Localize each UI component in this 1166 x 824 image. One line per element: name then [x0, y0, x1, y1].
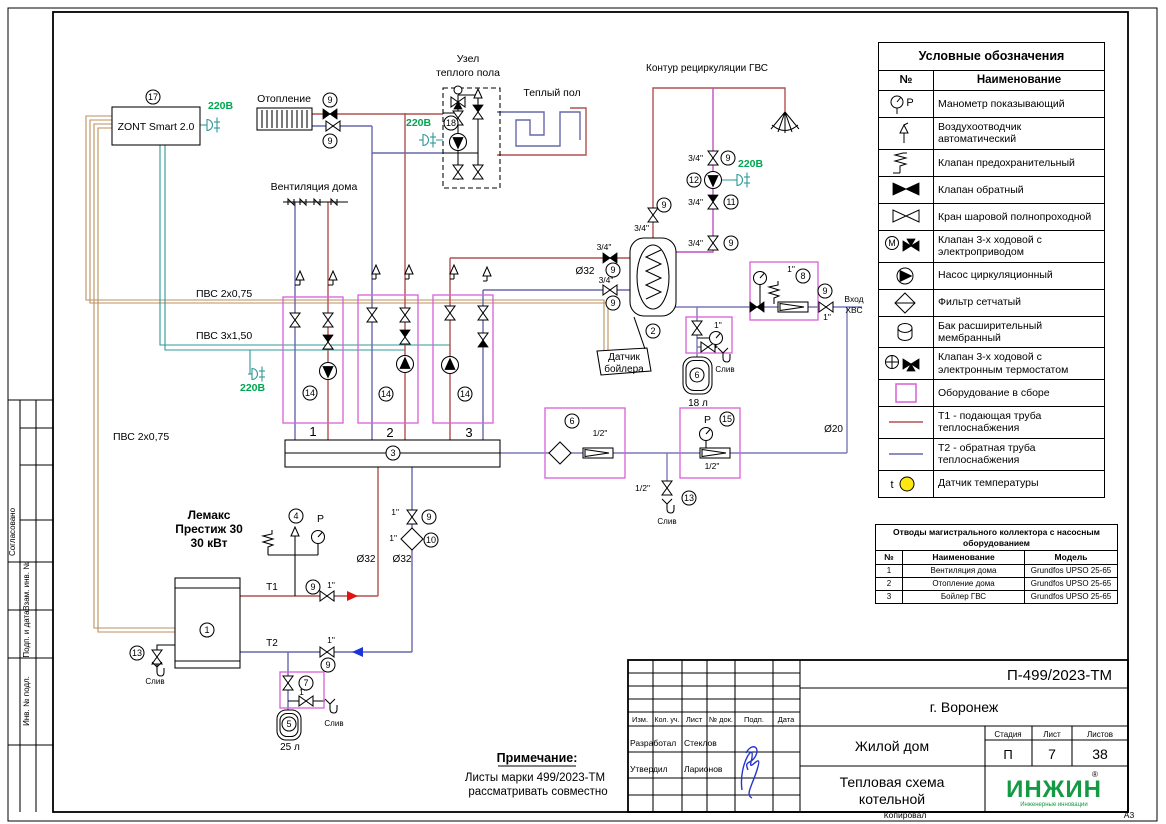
legend-row-name: Воздухоотводчик автоматический	[934, 118, 1104, 149]
doc-number: П-499/2023-ТМ	[1007, 667, 1112, 684]
equipment-tag: 18	[444, 116, 458, 130]
pump-col-model: Модель	[1025, 551, 1117, 564]
equipment-tag: 14	[458, 387, 472, 401]
size-label: 1"	[714, 320, 722, 330]
legend-row: Воздухоотводчик автоматический	[879, 118, 1104, 150]
legend-row: МКлапан 3-х ходовой с электроприводом	[879, 231, 1104, 263]
group-number: 1	[309, 424, 316, 439]
pump-table: Отводы магистрального коллектора с насос…	[875, 524, 1118, 604]
power-label: 220В	[406, 117, 432, 129]
svg-text:9: 9	[327, 95, 332, 105]
equipment-tag: 1	[200, 623, 214, 637]
equipment-tag: 14	[303, 386, 317, 400]
ball-icon	[879, 204, 934, 230]
size-label: Ø32	[576, 266, 595, 277]
size-label: 1/2"	[593, 428, 608, 438]
rev-col: № док.	[709, 715, 733, 724]
equipment-tag: 2	[646, 324, 660, 338]
svg-text:t: t	[890, 479, 893, 491]
boiler-name: Престиж 30	[175, 522, 243, 536]
equipment-tag: 9	[606, 263, 620, 277]
drain-label: Слив	[657, 517, 676, 526]
inlet-label: Вход	[844, 294, 863, 304]
pump-row-name: Вентиляция дома	[903, 565, 1025, 577]
pump-row-model: Grundfos UPSO 25-65	[1025, 578, 1117, 590]
strainer-icon	[879, 290, 934, 316]
equipment-tag: 9	[323, 93, 337, 107]
equipment-tag: 6	[565, 414, 579, 428]
svg-text:14: 14	[381, 389, 391, 399]
equipment-tag: 3	[386, 446, 400, 460]
note-line2: рассматривать совместно	[468, 786, 607, 798]
sidebar-section-label: Инв. № подл.	[22, 676, 31, 726]
legend-row: tДатчик температуры	[879, 471, 1104, 497]
svg-text:9: 9	[822, 286, 827, 296]
equipment-tag: 9	[721, 151, 735, 165]
pump-row-name: Отопление дома	[903, 578, 1025, 590]
rev-col: Лист	[686, 715, 703, 724]
legend-rows: PМанометр показывающийВоздухоотводчик ав…	[879, 91, 1104, 497]
equipment-tag: 5	[282, 717, 296, 731]
size-label: 1"	[327, 580, 335, 590]
legend-col-no: №	[879, 71, 934, 90]
size-label: 1/2"	[705, 461, 720, 471]
size-label: 1"	[391, 507, 399, 517]
gauge-p-label: P	[704, 414, 711, 426]
power-label: 220В	[208, 100, 234, 112]
legend-row-name: Датчик температуры	[934, 471, 1104, 497]
pipe-label-t2: Т2	[266, 638, 278, 649]
svg-text:9: 9	[728, 238, 733, 248]
svg-text:18: 18	[446, 118, 456, 128]
sensor-label: Датчик	[608, 352, 640, 363]
drain-label: Слив	[145, 677, 164, 686]
logo-subtitle: Инженерные инновации	[1020, 802, 1088, 808]
title-block: П-499/2023-ТМ г. Воронеж Жилой дом Стади…	[628, 660, 1128, 812]
ball-valves-horizontal	[299, 121, 833, 706]
size-label: 1"	[787, 264, 795, 274]
svg-text:9: 9	[725, 153, 730, 163]
shower-icon	[771, 112, 799, 133]
cable-label: ПВС 3х1,50	[196, 330, 252, 342]
sidebar-section-label: Взам. инв. №	[22, 561, 31, 611]
svg-text:5: 5	[286, 719, 291, 729]
legend-row: Клапан предохранительный	[879, 150, 1104, 177]
zont-label: ZONT Smart 2.0	[118, 121, 195, 133]
equipment-tag: 6	[690, 368, 704, 382]
pump-table-title: Отводы магистрального коллектора с насос…	[876, 525, 1117, 551]
radiator-icon	[257, 108, 312, 130]
legend-row: Клапан 3-х ходовой с электронным термост…	[879, 348, 1104, 380]
equipment-tag: 12	[687, 173, 701, 187]
boiler-name: Лемакс	[188, 508, 231, 522]
equipment-tag: 7	[299, 676, 313, 690]
note-line1: Листы марки 499/2023-ТМ	[465, 772, 605, 784]
equipment-tag: 9	[724, 236, 738, 250]
flow-arrow-supply	[347, 591, 358, 601]
equipment-tag: 9	[321, 658, 335, 672]
motor3way-icon: М	[879, 231, 934, 262]
legend-row-name: Клапан 3-х ходовой с электронным термост…	[934, 348, 1104, 379]
pressure-gauges	[312, 272, 767, 548]
logo-r-mark: ®	[1092, 770, 1098, 779]
safety-icon	[879, 150, 934, 176]
size-label: 3/4"	[634, 223, 649, 233]
legend-row-name: Т2 - обратная труба теплоснабжения	[934, 439, 1104, 470]
drain-label: Слив	[324, 719, 343, 728]
svg-text:14: 14	[460, 389, 470, 399]
pipe-label-t1: Т1	[266, 582, 278, 593]
approved-label: Утвердил	[630, 764, 668, 774]
svg-text:12: 12	[689, 175, 699, 185]
gvs-loop-label: Контур рециркуляции ГВС	[646, 63, 768, 74]
heating-label: Отопление	[257, 93, 311, 105]
sidebar-section-label: Подп. и дата	[22, 610, 31, 658]
legend-row-name: Манометр показывающий	[934, 91, 1104, 117]
size-label: 3/4"	[688, 238, 703, 248]
equipment-tag: 9	[306, 580, 320, 594]
svg-text:7: 7	[303, 678, 308, 688]
svg-text:9: 9	[426, 512, 431, 522]
note-heading: Примечание:	[497, 751, 578, 765]
svg-text:9: 9	[610, 298, 615, 308]
sheet-value: 7	[1048, 746, 1056, 762]
svg-text:9: 9	[610, 265, 615, 275]
sidebar-agreed-label: Согласовано	[8, 507, 17, 556]
svg-text:15: 15	[722, 414, 732, 424]
group-number: 3	[465, 425, 472, 440]
gauge-icon: P	[879, 91, 934, 117]
boiler-name: 30 кВт	[190, 536, 227, 550]
pump-table-row: 1Вентиляция домаGrundfos UPSO 25-65	[876, 565, 1117, 578]
sheet-label: Лист	[1043, 730, 1061, 739]
thermo3way-icon	[879, 348, 934, 379]
company-logo: ИНЖИН	[1006, 776, 1102, 803]
drawing-sheet: Согласовано Взам. инв. № Подп. и дата Ин…	[0, 0, 1166, 824]
equipment-tag: 13	[682, 491, 696, 505]
legend-row: Клапан обратный	[879, 177, 1104, 204]
legend-row-name: Т1 - подающая труба теплоснабжения	[934, 407, 1104, 438]
legend-row-name: Бак расширительный мембранный	[934, 317, 1104, 348]
check-icon	[879, 177, 934, 203]
group-number: 2	[386, 425, 393, 440]
power-label: 220В	[240, 382, 266, 394]
equipment-tag: 4	[289, 509, 303, 523]
sheet-title-line2: котельной	[859, 791, 925, 807]
equipment-tag: 9	[657, 198, 671, 212]
pump-row-model: Grundfos UPSO 25-65	[1025, 591, 1117, 603]
legend-row-name: Клапан предохранительный	[934, 150, 1104, 176]
assembly-icon	[879, 380, 934, 406]
legend-row-name: Фильтр сетчатый	[934, 290, 1104, 316]
svg-text:6: 6	[694, 370, 699, 380]
svg-text:9: 9	[327, 136, 332, 146]
tank-volume: 25 л	[280, 742, 300, 753]
svg-text:9: 9	[325, 660, 330, 670]
legend-row: Насос циркуляционный	[879, 263, 1104, 290]
rev-col: Дата	[778, 715, 795, 724]
floor-node-label: Узел	[457, 53, 479, 65]
legend-col-name: Наименование	[934, 71, 1104, 90]
equipment-tag: 9	[818, 284, 832, 298]
object-name: Жилой дом	[855, 738, 929, 754]
legend-row-name: Оборудование в сборе	[934, 380, 1104, 406]
svg-text:8: 8	[800, 271, 805, 281]
sensor-label: бойлера	[604, 363, 644, 375]
legend-row: Оборудование в сборе	[879, 380, 1104, 407]
pump-col-no: №	[876, 551, 903, 564]
pump-row-no: 1	[876, 565, 903, 577]
svg-text:9: 9	[661, 200, 666, 210]
size-label: 1"	[389, 533, 397, 543]
pump-table-row: 2Отопление домаGrundfos UPSO 25-65	[876, 578, 1117, 591]
pump-row-no: 3	[876, 591, 903, 603]
legend-row-name: Насос циркуляционный	[934, 263, 1104, 289]
legend-row: Кран шаровой полнопроходной	[879, 204, 1104, 231]
legend-row: PМанометр показывающий	[879, 91, 1104, 118]
svg-text:6: 6	[569, 416, 574, 426]
power-label: 220В	[738, 158, 764, 170]
rev-col: Изм.	[632, 715, 648, 724]
svg-text:17: 17	[148, 92, 158, 102]
svg-text:11: 11	[726, 197, 735, 207]
size-label: 3/4"	[688, 197, 703, 207]
equipment-tag: 17	[146, 90, 160, 104]
size-label: Ø20	[824, 424, 843, 435]
stage-label: Стадия	[994, 730, 1021, 739]
legend-row-name: Клапан обратный	[934, 177, 1104, 203]
airvent-icon	[879, 118, 934, 149]
svg-text:14: 14	[305, 388, 315, 398]
inlet-label: ХВС	[845, 305, 862, 315]
equipment-tag: 8	[796, 269, 810, 283]
equipment-tag: 11	[724, 195, 738, 209]
tank-volume: 18 л	[688, 398, 708, 409]
pump-row-no: 2	[876, 578, 903, 590]
city: г. Воронеж	[930, 699, 999, 715]
size-label: 1/2"	[635, 483, 650, 493]
svg-text:2: 2	[650, 326, 655, 336]
pump-row-name: Бойлер ГВС	[903, 591, 1025, 603]
developed-by: Стеклов	[684, 738, 717, 748]
sheet-title-line1: Тепловая схема	[840, 774, 945, 790]
cable-label: ПВС 2х0,75	[113, 431, 169, 443]
pump-table-rows: 1Вентиляция домаGrundfos UPSO 25-652Отоп…	[876, 565, 1117, 603]
cable-label: ПВС 2х0,75	[196, 288, 252, 300]
svg-text:13: 13	[684, 493, 694, 503]
legend-row-name: Кран шаровой полнопроходной	[934, 204, 1104, 230]
svg-text:3: 3	[390, 448, 395, 458]
legend-row: Фильтр сетчатый	[879, 290, 1104, 317]
legend-title: Условные обозначения	[879, 43, 1104, 71]
size-label: Ø32	[393, 554, 412, 565]
legend-panel: Условные обозначения № Наименование PМан…	[878, 42, 1105, 498]
pump-col-name: Наименование	[903, 551, 1025, 564]
legend-header: № Наименование	[879, 71, 1104, 91]
tank-icon	[879, 317, 934, 348]
sheets-label: Листов	[1087, 730, 1113, 739]
size-label: 3/4"	[688, 153, 703, 163]
rev-col: Кол. уч.	[655, 717, 680, 724]
dhw-recirculation-pipe	[676, 88, 713, 252]
legend-row: Т1 - подающая труба теплоснабжения	[879, 407, 1104, 439]
pump-table-header: № Наименование Модель	[876, 551, 1117, 565]
equipment-tag: 9	[323, 134, 337, 148]
rev-col: Подп.	[744, 715, 764, 724]
svg-text:13: 13	[132, 648, 142, 658]
svg-text:9: 9	[310, 582, 315, 592]
legend-row-name: Клапан 3-х ходовой с электроприводом	[934, 231, 1104, 262]
equipment-tag: 13	[130, 646, 144, 660]
size-label: 1"	[823, 312, 831, 322]
svg-text:М: М	[888, 238, 896, 248]
dhw-tank	[630, 238, 676, 316]
approved-by: Ларионов	[684, 764, 723, 774]
equipment-tag: 10	[424, 533, 438, 547]
svg-text:1: 1	[204, 625, 209, 635]
house-vent-label: Вентиляция дома	[271, 181, 358, 193]
equipment-tag: 15	[720, 412, 734, 426]
sheets-value: 38	[1092, 746, 1108, 762]
pump-table-row: 3Бойлер ГВСGrundfos UPSO 25-65	[876, 591, 1117, 603]
air-vents	[291, 89, 491, 541]
equipment-tag: 14	[379, 387, 393, 401]
signature-scribble	[741, 747, 758, 798]
pump-row-model: Grundfos UPSO 25-65	[1025, 565, 1117, 577]
check-valves	[323, 105, 764, 349]
pump-icon	[879, 263, 934, 289]
t1line-icon	[879, 407, 934, 438]
drain-label: Слив	[715, 365, 734, 374]
warm-floor-label: Теплый пол	[523, 87, 580, 99]
size-label: 3/4"	[597, 242, 612, 252]
developed-label: Разработал	[630, 738, 676, 748]
flow-arrow-return	[352, 647, 363, 657]
sensor-icon: t	[879, 471, 934, 497]
legend-row: Бак расширительный мембранный	[879, 317, 1104, 349]
t2line-icon	[879, 439, 934, 470]
svg-text:P: P	[906, 97, 913, 109]
svg-text:4: 4	[293, 511, 298, 521]
size-label: 1"	[327, 635, 335, 645]
equipment-tag: 9	[606, 296, 620, 310]
gauge-p-label: P	[317, 513, 324, 525]
note: Примечание: Листы марки 499/2023-ТМ расс…	[465, 751, 608, 798]
size-label: Ø32	[357, 554, 376, 565]
legend-row: Т2 - обратная труба теплоснабжения	[879, 439, 1104, 471]
stage-value: П	[1003, 747, 1012, 762]
floor-node-label: теплого пола	[436, 67, 500, 79]
svg-text:10: 10	[426, 535, 436, 545]
equipment-tag: 9	[422, 510, 436, 524]
